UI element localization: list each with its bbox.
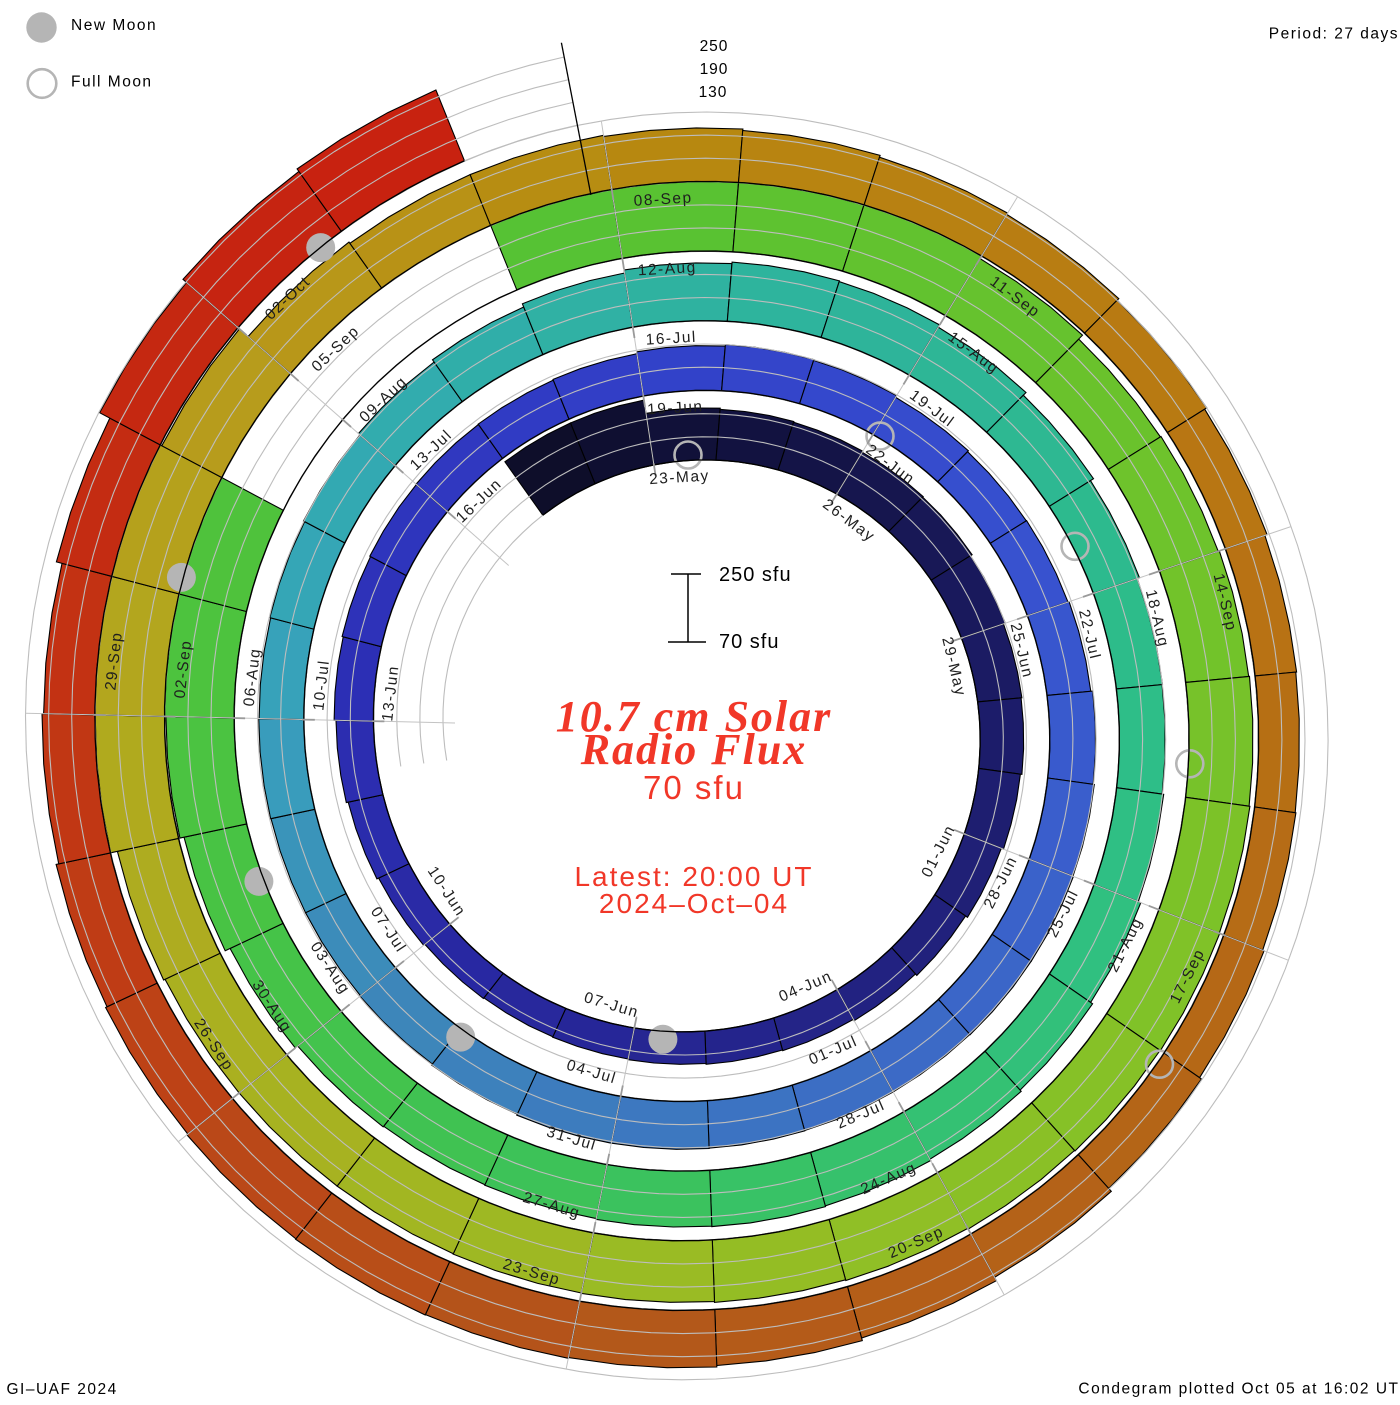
svg-text:250 sfu: 250 sfu <box>719 564 792 586</box>
svg-text:130: 130 <box>699 84 728 101</box>
svg-text:190: 190 <box>700 61 729 78</box>
svg-text:Radio Flux: Radio Flux <box>580 725 808 774</box>
svg-text:19-Jun: 19-Jun <box>647 398 704 418</box>
svg-text:70 sfu: 70 sfu <box>643 769 745 806</box>
svg-text:250: 250 <box>700 38 729 55</box>
svg-text:Full Moon: Full Moon <box>71 74 153 91</box>
svg-text:08-Sep: 08-Sep <box>633 189 693 209</box>
svg-text:New Moon: New Moon <box>71 17 157 34</box>
svg-text:2024–Oct–04: 2024–Oct–04 <box>599 888 789 919</box>
svg-text:GI–UAF 2024: GI–UAF 2024 <box>7 1381 118 1398</box>
svg-text:16-Jul: 16-Jul <box>645 329 697 349</box>
svg-text:12-Aug: 12-Aug <box>637 259 697 279</box>
svg-text:Period: 27 days: Period: 27 days <box>1269 26 1399 43</box>
svg-text:23-May: 23-May <box>649 468 711 489</box>
svg-text:Condegram plotted Oct 05 at 16: Condegram plotted Oct 05 at 16:02 UT <box>1078 1381 1399 1398</box>
svg-text:70 sfu: 70 sfu <box>719 631 779 653</box>
